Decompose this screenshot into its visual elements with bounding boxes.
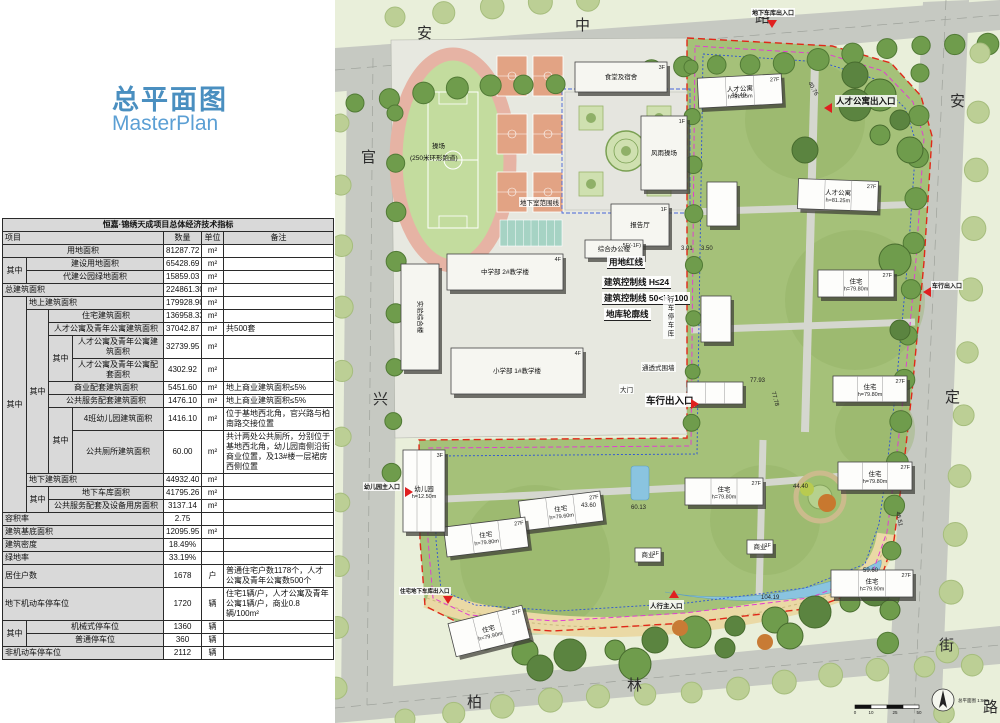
table-cell: m² [202, 408, 224, 431]
building-label: 风雨操场 [651, 148, 678, 157]
building-height-label: h=79.80m [863, 479, 888, 485]
table-cell: m² [202, 487, 224, 500]
street-tree [884, 495, 905, 516]
street-tree [346, 94, 364, 112]
feature-tree-orange [818, 494, 836, 512]
building-height-label: h=79.90m [860, 587, 885, 593]
street-tree [387, 105, 403, 121]
park-tree [619, 648, 651, 680]
table-cell: 5451.60 [164, 382, 202, 395]
park-tree [842, 62, 868, 88]
table-cell: 住宅1辆/户，人才公寓及青年公寓1辆/户，商业0.8辆/100m² [224, 588, 334, 621]
table-cell [224, 258, 334, 271]
table-cell: 60.00 [164, 431, 202, 474]
scale-bar [903, 705, 919, 709]
table-cell: 数量 [164, 232, 202, 245]
street-tree [866, 658, 889, 681]
table-cell: 4班幼儿园建筑面积 [73, 408, 164, 431]
table-cell: 建筑密度 [3, 539, 164, 552]
school-building: 小学部 1#教学楼4F [451, 348, 586, 398]
table-cell [224, 634, 334, 647]
plaza-circle-garden [621, 146, 631, 156]
residential-building: 住宅h=79.80m27F [685, 478, 766, 509]
street-tree [959, 278, 982, 301]
left-panel: 总平面图 MasterPlan 恒嘉·锦绣天成项目总体经济技术指标项目数量单位备… [0, 0, 335, 723]
table-cell [224, 500, 334, 513]
scale-bar [887, 705, 903, 709]
street-tree [939, 580, 963, 604]
residential-building: 住宅h=79.80m27F [818, 270, 897, 301]
residential-building: 幼儿园h=12.50m3F [403, 450, 448, 536]
table-cell: 公共厕所建筑面积 [73, 431, 164, 474]
table-cell [224, 539, 334, 552]
table-cell: m² [202, 474, 224, 487]
table-cell [224, 474, 334, 487]
building-label: 幼儿园 [414, 484, 434, 493]
park-tree [839, 89, 871, 121]
table-cell: m² [202, 359, 224, 382]
table-cell [224, 297, 334, 310]
table-cell: 共计两处公共厕所，分别位于基地西北角，幼儿园南侧沿街商业位置，及13#楼一层裙房… [224, 431, 334, 474]
building-label: 中学部 2#教学楼 [481, 267, 530, 276]
building-floors-label: 1F [661, 207, 668, 213]
street-tree [948, 465, 971, 488]
building-floors-label: 4F [555, 257, 562, 263]
table-cell: 224861.30 [164, 284, 202, 297]
scale-tick: 25 [892, 710, 898, 715]
table-cell: 18.49% [164, 539, 202, 552]
divider-tree [685, 256, 702, 273]
street-tree [413, 82, 435, 104]
street-tree [911, 64, 929, 82]
table-cell: 人才公寓及青年公寓配套面积 [73, 359, 164, 382]
street-tree [480, 0, 504, 19]
building-height-label: h=79.80m [844, 287, 869, 293]
street-tree [962, 217, 986, 241]
table-cell [224, 487, 334, 500]
table-cell [224, 284, 334, 297]
table-cell [224, 336, 334, 359]
park-tree [880, 600, 900, 620]
street-tree [382, 463, 401, 482]
building-floors-label: 27F [902, 573, 912, 579]
table-cell: 3137.14 [164, 500, 202, 513]
street-tree [772, 670, 796, 694]
table-cell [202, 552, 224, 565]
park-tree [642, 627, 668, 653]
table-cell [224, 271, 334, 284]
building-label: 住宅 [869, 469, 883, 478]
table-cell [202, 539, 224, 552]
table-cell: 其中 [49, 408, 73, 474]
table-title: 恒嘉·锦绣天成项目总体经济技术指标 [3, 219, 334, 232]
table-cell: 179928.90 [164, 297, 202, 310]
table-cell: m² [202, 310, 224, 323]
street-tree [387, 154, 405, 172]
building-label: 报告厅 [630, 220, 650, 229]
park-tree [890, 110, 910, 130]
residential-building: 住宅h=79.90m27F [831, 570, 916, 601]
parterre-tree [586, 179, 596, 189]
building-floors-label: 3F [437, 453, 444, 459]
building-floors-label: 1F [653, 551, 660, 557]
table-cell: m² [202, 245, 224, 258]
building-footprint [701, 296, 731, 342]
table-cell [224, 359, 334, 382]
building-floors-label: 3F [659, 65, 666, 71]
table-cell: 其中 [27, 310, 49, 474]
table-cell: 1416.10 [164, 408, 202, 431]
street-tree [546, 75, 565, 94]
siteplan-drawing: 食堂及宿舍3F风雨操场1F报告厅1F综合办公楼5F(-1F)中学部 2#教学楼4… [335, 0, 1000, 723]
building-floors-label: 1F [765, 543, 772, 549]
street-tree [480, 75, 501, 96]
street-tree [964, 158, 988, 182]
street-tree [634, 684, 655, 705]
table-cell: 人才公寓及青年公寓建筑面积 [73, 336, 164, 359]
school-building: 实验综合楼 [401, 264, 442, 374]
table-cell: 其中 [3, 297, 27, 513]
street-tree [385, 413, 402, 430]
table-cell: 总建筑面积 [3, 284, 164, 297]
table-cell: 15859.03 [164, 271, 202, 284]
table-cell: m² [202, 284, 224, 297]
scale-tick: 50 [916, 710, 922, 715]
street-tree [335, 427, 351, 446]
table-cell: 用地面积 [3, 245, 164, 258]
street-tree [773, 53, 794, 74]
street-tree [890, 411, 912, 433]
table-cell: 37042.87 [164, 323, 202, 336]
table-cell: 136958.33 [164, 310, 202, 323]
street-tree [819, 663, 843, 687]
residential-building: 商业1F [635, 548, 664, 566]
divider-tree [686, 311, 701, 326]
divider-tree [684, 60, 698, 74]
table-cell: 1476.10 [164, 395, 202, 408]
park-tree [897, 137, 923, 163]
table-cell: m² [202, 526, 224, 539]
street-tree [943, 522, 967, 546]
table-cell: 地上商业建筑面积≤5% [224, 395, 334, 408]
street-tree [335, 493, 350, 512]
table-cell: 共500套 [224, 323, 334, 336]
table-cell: 普通住宅户数1178个，人才公寓及青年公寓数500个 [224, 565, 334, 588]
table-cell [224, 513, 334, 526]
table-cell: 户 [202, 565, 224, 588]
residential-building: 住宅h=79.80m27F [838, 462, 915, 494]
building-label: 住宅 [718, 485, 732, 494]
building-footprint [687, 382, 743, 404]
residential-building: 人才公寓h=81.25m27F [697, 74, 786, 113]
street-tree [681, 682, 702, 703]
table-cell [224, 647, 334, 660]
street-tree [901, 280, 920, 299]
park-tree-orange [672, 620, 688, 636]
park-tree [715, 638, 735, 658]
table-cell: 地上商业建筑面积≤5% [224, 382, 334, 395]
street-tree [842, 43, 863, 64]
table-cell: 辆 [202, 634, 224, 647]
table-cell: 备注 [224, 232, 334, 245]
table-cell: m² [202, 297, 224, 310]
street-tree [914, 656, 935, 677]
building-height-label: h=12.50m [412, 494, 437, 500]
school-building: 食堂及宿舍3F [575, 62, 670, 96]
table-cell: 12095.95 [164, 526, 202, 539]
table-cell: m² [202, 431, 224, 474]
table-cell: 其中 [3, 621, 27, 647]
internal-path [759, 440, 763, 600]
table-cell: 地下机动车停车位 [3, 588, 164, 621]
street-tree [446, 77, 468, 99]
street-tree [335, 175, 351, 195]
street-tree [335, 360, 353, 381]
table-cell [224, 552, 334, 565]
parterre-tree [586, 113, 596, 123]
building-height-label: h=79.80m [712, 495, 737, 501]
table-cell: 容积率 [3, 513, 164, 526]
table-cell: 代建公园绿地面积 [27, 271, 164, 284]
table-cell: 81287.72 [164, 245, 202, 258]
divider-tree [683, 414, 700, 431]
building-label: 小学部 1#教学楼 [493, 366, 542, 375]
street-tree [727, 677, 750, 700]
building-floors-label: 4F [575, 351, 582, 357]
building-label: 实验综合楼 [416, 301, 425, 334]
table-cell: m² [202, 336, 224, 359]
residential-building: 人才公寓h=81.25m27F [797, 179, 881, 216]
scale-bar [855, 705, 871, 709]
park-tree [527, 655, 553, 681]
table-cell: m² [202, 382, 224, 395]
street-tree [905, 188, 927, 210]
building-height-label: h=81.25m [825, 198, 850, 205]
building-floors-label: 27F [589, 494, 600, 501]
residential-building: 商业1F [747, 540, 776, 558]
table-cell: 位于基地西北角，官兴路与柏南路交接位置 [224, 408, 334, 431]
street-tree [961, 654, 983, 676]
park-tree [777, 623, 803, 649]
street-tree [882, 541, 901, 560]
table-cell: 人才公寓及青年公寓建筑面积 [49, 323, 164, 336]
table-cell [224, 310, 334, 323]
table-cell: 地下车库面积 [49, 487, 164, 500]
table-cell: 居住户数 [3, 565, 164, 588]
masterplan-sheet: 总平面图 MasterPlan 恒嘉·锦绣天成项目总体经济技术指标项目数量单位备… [0, 0, 1000, 723]
school-building: 中学部 2#教学楼4F [447, 254, 566, 294]
building-floors-label: 27F [514, 520, 525, 527]
street-tree [335, 296, 353, 318]
table-cell: 非机动车停车位 [3, 647, 164, 660]
table-cell: m² [202, 258, 224, 271]
school-building: 综合办公楼5F(-1F) [585, 240, 646, 262]
park-tree [870, 125, 890, 145]
residential-building [707, 182, 740, 230]
siteplan-map: 食堂及宿舍3F风雨操场1F报告厅1F综合办公楼5F(-1F)中学部 2#教学楼4… [335, 0, 1000, 723]
street-tree [335, 114, 349, 132]
scale-tick: 10 [868, 710, 874, 715]
table-cell: 其中 [49, 336, 73, 382]
building-floors-label: 27F [896, 379, 906, 385]
building-label: 住宅 [866, 577, 880, 586]
street-tree [945, 34, 965, 54]
residential-building: 住宅h=79.80m27F [833, 376, 910, 406]
street-tree [490, 695, 514, 719]
table-cell: 1678 [164, 565, 202, 588]
street-tree [970, 43, 990, 63]
building-label: 住宅 [864, 382, 878, 391]
building-floors-label: 27F [770, 77, 780, 84]
table-cell [202, 513, 224, 526]
table-cell: 地上建筑面积 [27, 297, 164, 310]
park-tree [792, 137, 818, 163]
table-cell: 辆 [202, 621, 224, 634]
table-cell: 41795.26 [164, 487, 202, 500]
street-tree [386, 202, 406, 222]
compass-label: 总平面图 1:500 [958, 697, 989, 704]
table-cell: 公共服务配套建筑面积 [49, 395, 164, 408]
table-cell [224, 245, 334, 258]
park-tree [725, 616, 745, 636]
table-cell: m² [202, 323, 224, 336]
table-cell: 44932.40 [164, 474, 202, 487]
street-tree [967, 101, 989, 123]
table-cell: 绿地率 [3, 552, 164, 565]
table-cell: m² [202, 395, 224, 408]
scale-bar [871, 705, 887, 709]
table-cell: m² [202, 271, 224, 284]
table-cell: 公共服务配套及设备用房面积 [49, 500, 164, 513]
divider-tree [685, 364, 700, 379]
table-cell: 33.19% [164, 552, 202, 565]
table-cell [224, 526, 334, 539]
pool [631, 466, 649, 500]
residential-building [701, 296, 734, 346]
table-cell: 辆 [202, 588, 224, 621]
table-cell: 其中 [27, 487, 49, 513]
building-floors-label: 1F [679, 119, 686, 125]
street-tree [538, 688, 562, 712]
table-cell: 360 [164, 634, 202, 647]
table-cell: 其中 [3, 258, 27, 284]
table-cell: 单位 [202, 232, 224, 245]
street-tree [443, 702, 465, 723]
street-tree [514, 75, 533, 94]
indicator-table: 恒嘉·锦绣天成项目总体经济技术指标项目数量单位备注用地面积81287.72m²其… [2, 218, 334, 660]
street-tree [385, 7, 405, 27]
building-floors-label: 27F [883, 273, 893, 279]
street-tree [909, 106, 929, 126]
street-tree [740, 55, 760, 75]
table-cell: 2112 [164, 647, 202, 660]
street-tree [707, 56, 726, 75]
building-floors-label: 27F [867, 184, 877, 190]
table-cell: 项目 [3, 232, 164, 245]
street-tree [586, 685, 609, 708]
feature-tree-yellow [800, 482, 814, 496]
page-subtitle: MasterPlan [112, 112, 218, 136]
table-cell: 住宅建筑面积 [49, 310, 164, 323]
building-footprint [707, 182, 737, 226]
table-cell: 商业配套建筑面积 [49, 382, 164, 395]
building-label: 食堂及宿舍 [605, 72, 638, 81]
table-cell: 65428.69 [164, 258, 202, 271]
street-tree [957, 342, 978, 363]
table-cell: 1360 [164, 621, 202, 634]
street-tree [807, 48, 829, 70]
table-cell: 2.75 [164, 513, 202, 526]
building-floors-label: 5F(-1F) [623, 243, 642, 249]
table-cell: 建设用地面积 [27, 258, 164, 271]
park-tree [554, 639, 586, 671]
building-floors-label: 27F [901, 465, 911, 471]
table-cell: 4302.92 [164, 359, 202, 382]
table-cell: 1720 [164, 588, 202, 621]
street-tree [877, 39, 897, 59]
street-tree [953, 405, 974, 426]
table-cell: 建筑基底面积 [3, 526, 164, 539]
table-cell: 辆 [202, 647, 224, 660]
table-cell: 机械式停车位 [27, 621, 164, 634]
building-label: 住宅 [850, 277, 864, 286]
street-tree [912, 36, 930, 54]
table-cell: 32739.95 [164, 336, 202, 359]
park-tree [799, 596, 831, 628]
street-tree [936, 640, 959, 663]
table-cell: m² [202, 500, 224, 513]
table-cell: 地下建筑面积 [27, 474, 164, 487]
table-cell [224, 621, 334, 634]
building-height-label: h=79.80m [858, 392, 883, 398]
park-tree [890, 320, 910, 340]
park-tree-orange [757, 634, 773, 650]
residential-building [687, 382, 746, 408]
table-cell: 普通停车位 [27, 634, 164, 647]
street-tree [335, 235, 353, 257]
street-tree [877, 632, 898, 653]
divider-tree [685, 205, 703, 223]
school-building: 风雨操场1F [641, 116, 690, 194]
building-floors-label: 27F [752, 481, 762, 487]
street-tree [433, 2, 455, 24]
